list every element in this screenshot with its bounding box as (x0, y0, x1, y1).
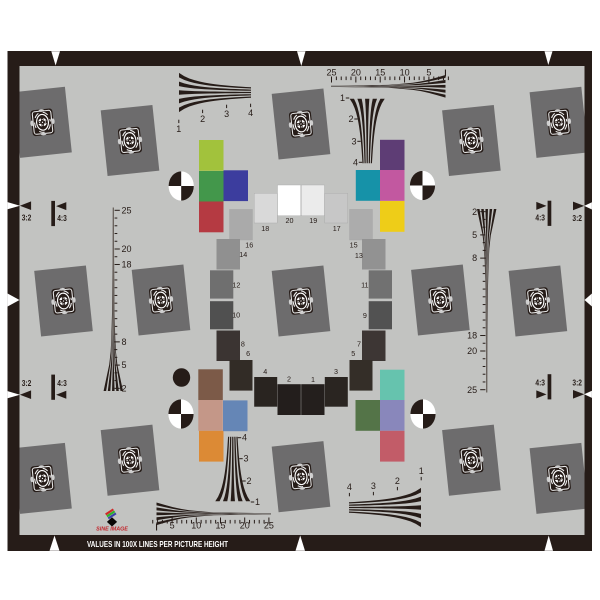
svg-text:SINE IMAGE: SINE IMAGE (96, 527, 128, 533)
svg-text:4: 4 (353, 157, 358, 167)
svg-text:7: 7 (357, 340, 361, 349)
svg-text:3:2: 3:2 (572, 379, 582, 388)
svg-text:8: 8 (472, 253, 477, 263)
svg-text:25: 25 (264, 520, 274, 530)
svg-text:8: 8 (241, 339, 245, 348)
svg-text:9: 9 (363, 311, 367, 320)
svg-text:20: 20 (240, 520, 250, 530)
svg-text:6: 6 (246, 349, 250, 358)
svg-text:4: 4 (248, 108, 253, 118)
svg-text:4: 4 (347, 482, 352, 492)
svg-text:20: 20 (351, 68, 361, 78)
svg-text:15: 15 (350, 241, 358, 250)
svg-text:16: 16 (245, 241, 253, 250)
svg-text:15: 15 (215, 520, 225, 530)
svg-text:3:2: 3:2 (22, 379, 32, 388)
svg-text:17: 17 (333, 224, 341, 233)
svg-text:20: 20 (286, 216, 294, 225)
svg-text:2: 2 (395, 476, 400, 486)
svg-text:1: 1 (255, 497, 260, 507)
svg-text:10: 10 (191, 520, 201, 530)
svg-text:3: 3 (224, 109, 229, 119)
svg-text:18: 18 (467, 331, 477, 341)
svg-text:VALUES IN 100X LINES PER PICTU: VALUES IN 100X LINES PER PICTURE HEIGHT (87, 540, 228, 549)
svg-text:5: 5 (170, 520, 175, 530)
svg-text:3: 3 (243, 454, 248, 464)
svg-text:4: 4 (242, 433, 247, 443)
svg-text:4:3: 4:3 (57, 214, 67, 223)
svg-text:15: 15 (375, 68, 385, 78)
svg-text:25: 25 (326, 68, 336, 78)
svg-text:3:2: 3:2 (22, 214, 32, 223)
svg-text:4:3: 4:3 (57, 379, 67, 388)
svg-text:5: 5 (122, 360, 127, 370)
svg-text:20: 20 (467, 346, 477, 356)
svg-text:3:2: 3:2 (572, 214, 582, 223)
svg-text:5: 5 (472, 230, 477, 240)
svg-text:2: 2 (472, 207, 477, 217)
svg-text:1: 1 (311, 375, 315, 384)
svg-text:18: 18 (122, 260, 132, 270)
svg-text:4:3: 4:3 (535, 214, 545, 223)
svg-text:12: 12 (232, 280, 240, 289)
svg-text:2: 2 (348, 114, 353, 124)
svg-text:25: 25 (467, 385, 477, 395)
svg-text:1: 1 (419, 466, 424, 476)
svg-text:18: 18 (261, 224, 269, 233)
svg-text:10: 10 (232, 310, 240, 319)
svg-text:5: 5 (351, 349, 355, 358)
svg-text:25: 25 (122, 205, 132, 215)
svg-text:3: 3 (334, 367, 338, 376)
svg-text:19: 19 (309, 216, 317, 225)
svg-text:2: 2 (246, 476, 251, 486)
svg-text:20: 20 (122, 244, 132, 254)
svg-text:2: 2 (200, 114, 205, 124)
svg-text:3: 3 (371, 481, 376, 491)
svg-text:13: 13 (355, 251, 363, 260)
svg-text:11: 11 (361, 280, 368, 289)
svg-text:5: 5 (426, 68, 431, 78)
svg-text:10: 10 (400, 68, 410, 78)
svg-text:4: 4 (263, 367, 267, 376)
svg-text:1: 1 (340, 93, 345, 103)
svg-text:3: 3 (351, 136, 356, 146)
svg-text:8: 8 (122, 337, 127, 347)
svg-text:1: 1 (176, 124, 181, 134)
svg-text:2: 2 (122, 383, 127, 393)
svg-text:14: 14 (239, 250, 247, 259)
svg-text:2: 2 (287, 375, 291, 384)
svg-text:4:3: 4:3 (535, 379, 545, 388)
